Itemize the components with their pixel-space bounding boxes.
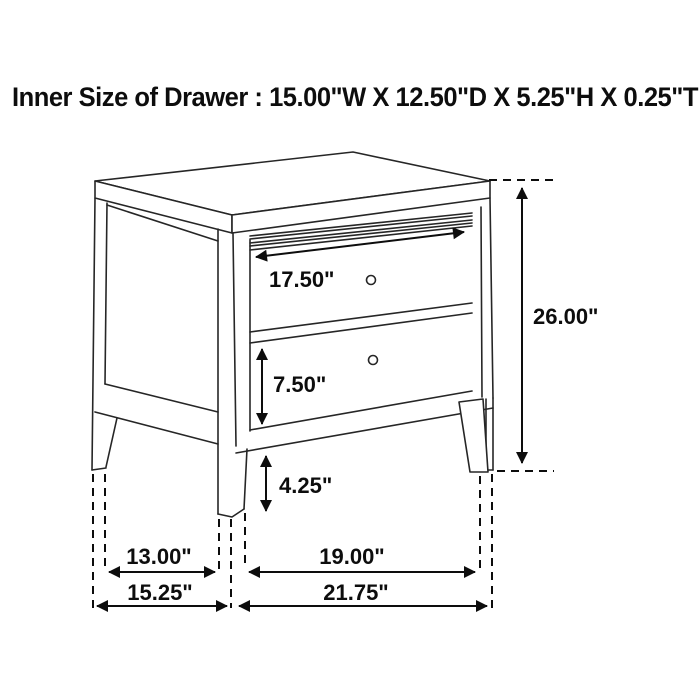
dimension-annotations: 17.50" 7.50" 4.25" 26.00" 13.00": [93, 180, 598, 608]
dim-label-front-overall-width: 21.75": [323, 580, 388, 605]
dim-label-top-drawer-width: 17.50": [269, 267, 334, 292]
dim-label-side-overall-depth: 15.25": [127, 580, 192, 605]
dim-label-front-inner-span: 19.00": [319, 544, 384, 569]
dim-label-overall-height: 26.00": [533, 304, 598, 329]
nightstand-dimension-diagram: Inner Size of Drawer : 15.00"W X 12.50"D…: [0, 0, 700, 700]
dim-side-overall-depth: 15.25": [97, 580, 227, 606]
nightstand-drawing: [92, 152, 493, 517]
drawer-knob-icon: [369, 356, 378, 365]
side-panel: [92, 198, 218, 470]
product-dimension-sheet: Inner Size of Drawer : 15.00"W X 12.50"D…: [0, 0, 700, 700]
dim-overall-height: 26.00": [522, 188, 598, 463]
dim-front-inner-span: 19.00": [249, 544, 475, 572]
front-left-leg: [218, 229, 247, 517]
dim-leg-clearance: 4.25": [266, 456, 332, 511]
dim-side-inner-span: 13.00": [109, 544, 215, 572]
front-right-leg: [459, 399, 488, 472]
drawer-knob-icon: [367, 276, 376, 285]
dim-front-overall-width: 21.75": [239, 580, 487, 606]
dim-bottom-drawer-height: 7.50": [262, 349, 326, 424]
dim-top-drawer-width: 17.50": [256, 232, 464, 292]
front-frame: [236, 198, 493, 453]
back-left-leg: [92, 418, 117, 470]
diagram-title: Inner Size of Drawer : 15.00"W X 12.50"D…: [12, 82, 699, 112]
dim-label-leg-clearance: 4.25": [279, 473, 332, 498]
dim-label-side-inner-span: 13.00": [126, 544, 191, 569]
dim-label-bottom-drawer-height: 7.50": [273, 372, 326, 397]
